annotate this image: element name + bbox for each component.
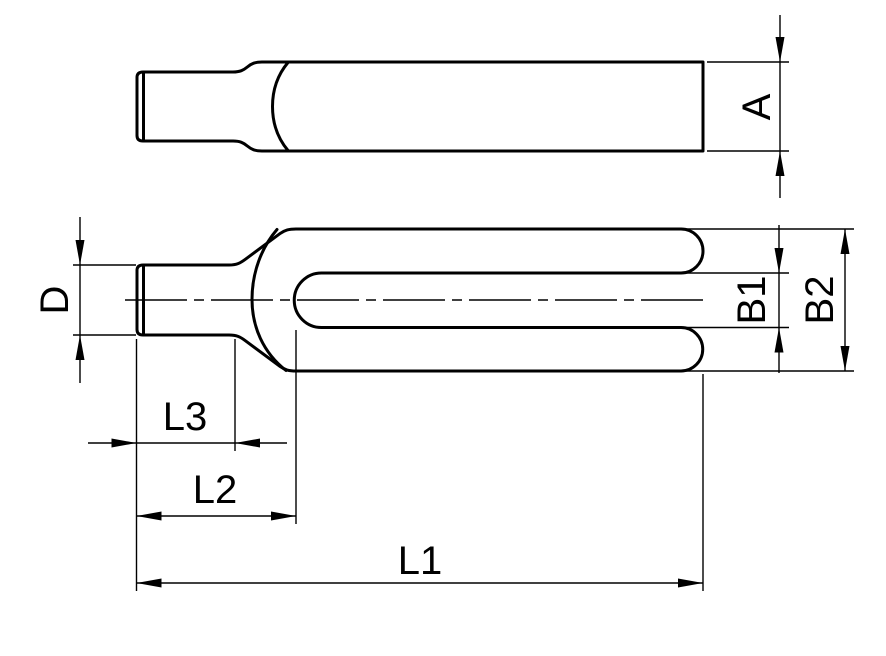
clamp-fork-dimension-drawing: A D B1 B2 [0,0,886,656]
dim-a-arrow-bottom [776,151,785,176]
dim-b2-arrow-top [841,229,850,254]
side-view [137,62,703,151]
dim-l2-arrow-left [137,512,162,521]
dim-l2-label: L2 [193,468,238,512]
dim-a-label: A [735,93,779,120]
fork-view [125,229,710,371]
dimension-l3: L3 [88,339,287,591]
dim-l1-arrow-right [678,579,703,588]
dimension-b1: B1 [684,225,789,373]
side-view-outline [137,62,703,151]
dim-l3-arrow-right [235,439,260,448]
dim-l1-label: L1 [398,539,443,583]
dimension-a: A [707,15,789,198]
dim-l1-arrow-left [137,579,162,588]
dim-b1-arrow-top [775,248,784,273]
technical-drawing-canvas: A D B1 B2 [0,0,886,656]
dim-a-arrow-top [776,37,785,62]
dim-d-arrow-top [76,240,85,265]
side-view-forging-transition-arc [273,63,289,151]
dim-b2-label: B2 [798,276,842,325]
dim-d-label: D [33,286,77,315]
dim-b2-arrow-bottom [841,346,850,371]
dim-d-arrow-bottom [76,335,85,360]
dim-l3-label: L3 [163,395,208,439]
dim-b1-arrow-bottom [775,328,784,353]
dim-l3-arrow-left [112,439,137,448]
dim-l2-arrow-right [271,512,296,521]
dim-b1-label: B1 [730,276,774,325]
dimension-d: D [33,217,136,383]
